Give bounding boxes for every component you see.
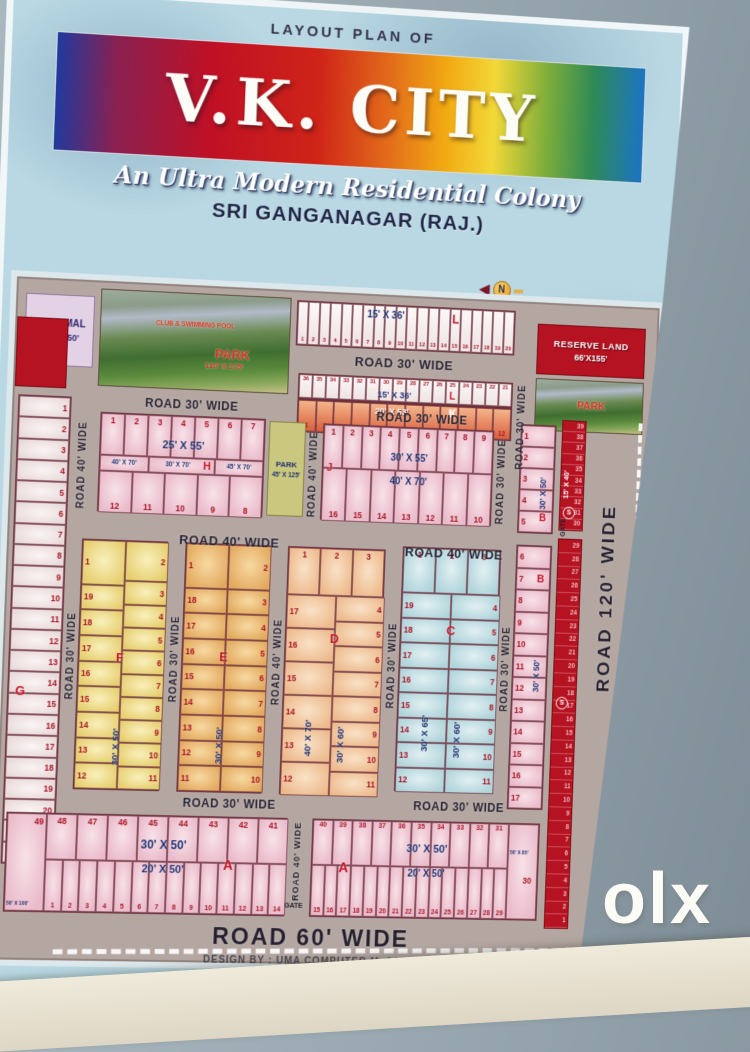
plot-cell: 3 xyxy=(546,888,569,902)
plot-cell: 5 xyxy=(450,619,500,645)
plot-cell: 36 xyxy=(299,374,313,398)
plot-cell: 10 xyxy=(549,794,572,808)
plot-cell: 1 xyxy=(287,547,321,595)
plot-cell: 3 xyxy=(124,581,168,606)
plot-cell: 4 xyxy=(16,459,68,482)
plot-cell: 8 xyxy=(222,716,265,742)
plot-cell: 7 xyxy=(516,567,551,590)
plot-cell: 26 xyxy=(557,580,580,594)
road-label-30-h: ROAD 30' WIDE xyxy=(109,394,275,415)
plot-cell: 12 xyxy=(280,762,330,797)
plot-cell: 13 xyxy=(9,650,61,673)
park-h-dim: 45' X 125' xyxy=(272,471,300,479)
block-e: 11817161514131211 2345678910 E 30' X 50' xyxy=(176,542,271,793)
plot-cell: 16 xyxy=(321,468,347,522)
layout-plan-sheet: LAYOUT PLAN OF V.K. CITY An Ultra Modern… xyxy=(0,0,689,1011)
plot-cell: 9 xyxy=(119,720,163,744)
north-arrow-head: ◀ xyxy=(479,282,490,297)
plot-cell: 7 xyxy=(548,834,571,848)
plot-cell: 18 xyxy=(184,587,228,614)
plot-cell: 11 xyxy=(513,655,548,678)
plot-cell: 1 xyxy=(19,395,71,418)
north-arrow-icon: ◀ N xyxy=(479,280,523,301)
plot-cell: 20 xyxy=(503,311,515,354)
plot-cell: 16 xyxy=(552,713,575,727)
plot-cell: 7 xyxy=(223,690,266,717)
block-e-right-col: 2345678910 xyxy=(220,545,272,793)
plot-cell: 29 xyxy=(558,539,581,553)
block-g: 12345678910111213141516171819202122 G xyxy=(1,394,72,864)
plot-cell: 13 xyxy=(251,864,270,916)
plot-cell: 12 xyxy=(512,677,547,700)
plot-cell: 5 xyxy=(518,511,553,534)
strip-l1: 1234567891011121314151617181920 15' X 36… xyxy=(296,300,516,355)
plot-cell: 23 xyxy=(472,382,486,406)
block-b-top-letter: B xyxy=(539,513,546,524)
plot-cell: 5 xyxy=(547,861,570,875)
plot-cell: 16 xyxy=(509,764,544,787)
plot-cell: 4 xyxy=(123,604,167,628)
plot-cell: 2 xyxy=(18,417,70,440)
plot-cell: 12 xyxy=(550,767,573,781)
plot-cell: 13 xyxy=(511,699,546,722)
park-dim: 110' X 175' xyxy=(205,361,244,372)
plot-cell: 1 xyxy=(185,543,229,589)
plot-cell: 17 xyxy=(286,594,336,629)
plot-cell: 6 xyxy=(15,501,67,524)
block-f: 11918171615141312 234567891011 F 30' X 5… xyxy=(73,538,169,791)
plot-49-corner: 49 50' X 100' xyxy=(4,813,47,912)
plot-cell: 4 xyxy=(546,874,569,888)
plot-cell: 14 xyxy=(551,740,574,754)
page-title: V.K. CITY xyxy=(164,59,540,158)
plot-30-number: 30 xyxy=(522,876,531,886)
plot-cell: 10 xyxy=(466,473,492,527)
plot-cell: 5 xyxy=(398,428,418,472)
road-label-30-bottom-left: ROAD 30' WIDE xyxy=(146,795,311,813)
plot-cell: 9 xyxy=(196,474,230,517)
plot-cell: 7 xyxy=(120,674,164,698)
plot-cell: 1 xyxy=(545,914,568,928)
road-label-30-top: ROAD 30' WIDE xyxy=(308,352,499,375)
plot-cell: 34 xyxy=(325,375,339,399)
plot-cell: 5 xyxy=(122,627,166,651)
plot-cell: 18 xyxy=(79,609,123,636)
plot-cell: 14 xyxy=(510,721,545,744)
block-e-letter: E xyxy=(219,649,228,664)
plot-cell: 3 xyxy=(361,426,381,470)
plot-cell: 10 xyxy=(118,743,162,767)
plot-cell: 5 xyxy=(225,640,268,667)
road-label-40-gh: ROAD 40' WIDE xyxy=(73,415,91,515)
plot-cell: 7 xyxy=(240,419,265,461)
road-label-40-aa: ROAD 40' WIDE xyxy=(288,824,304,899)
plot-cell: 41 xyxy=(257,818,289,864)
plot-cell: 10 xyxy=(513,633,548,656)
plot-cell: 11 xyxy=(329,771,379,797)
block-f-right-col: 234567891011 xyxy=(117,541,169,790)
gate-label-right: GATE xyxy=(560,518,567,537)
layout-map: INFORMAL 90' X 150' CLUB & SWIMMING POOL… xyxy=(0,276,660,969)
plot-cell: 19 xyxy=(4,777,56,799)
plot-cell: 12 xyxy=(395,767,445,793)
plot-cell: 12 xyxy=(10,629,62,652)
red-corner-block xyxy=(15,316,69,388)
reserve-land-label: RESERVE LAND xyxy=(554,339,629,353)
plot-cell: 21 xyxy=(498,383,512,407)
plot-cell: 2 xyxy=(545,901,568,915)
plot-cell: 11 xyxy=(550,780,573,794)
plot-30-corner: 50' X 85' 30 xyxy=(505,824,539,920)
block-d-letter: D xyxy=(330,631,340,646)
block-g-cells: 12345678910111213141516171819202122 xyxy=(2,395,71,863)
road-label-120: ROAD 120' WIDE xyxy=(592,453,623,744)
plot-cell: 1 xyxy=(81,539,126,585)
plot-cell: 6 xyxy=(224,665,267,692)
plot-cell: 2 xyxy=(228,545,272,590)
block-c-letter: C xyxy=(446,623,455,638)
plot-cell: 6 xyxy=(547,847,570,861)
park-label: PARK xyxy=(215,347,250,363)
plot-cell: 11 xyxy=(11,608,63,631)
plot-cell: 2 xyxy=(125,541,169,582)
plot-49-number: 49 xyxy=(34,816,44,826)
block-b-low-cells: 67891011121314151617 xyxy=(508,546,551,809)
plot-cell: 9 xyxy=(12,565,64,588)
plot-30-dim: 50' X 85' xyxy=(510,850,529,856)
road-120-center-dashes xyxy=(620,423,642,930)
plot-cell: 2 xyxy=(319,548,353,596)
plot-cell: 12 xyxy=(74,763,118,790)
strip-l1-letter: L xyxy=(452,313,459,327)
plot-cell: 19 xyxy=(401,592,451,619)
plot-cell: 13 xyxy=(551,754,574,768)
park-h-label: PARK xyxy=(276,459,298,469)
plot-cell: 12 xyxy=(98,470,132,513)
road-label-40-parkj: ROAD 40' WIDE xyxy=(304,425,321,524)
right-park-label: PARK xyxy=(577,400,606,413)
plot-cell: 10 xyxy=(220,766,263,792)
plot-cell: 27 xyxy=(557,566,580,580)
road-label-60: ROAD 60' WIDE xyxy=(161,922,459,954)
plot-cell: 9 xyxy=(473,431,493,475)
plot-cell: 35 xyxy=(312,375,326,399)
plot-cell: 25 xyxy=(556,593,579,607)
plot-cell: 4 xyxy=(380,427,400,471)
plot-cell: 24 xyxy=(459,381,473,405)
plot-cell: 8 xyxy=(119,697,163,721)
plot-cell: 8 xyxy=(455,430,475,474)
reserve-land-block: RESERVE LAND 66'X155' xyxy=(536,324,646,379)
plot-cell: 23 xyxy=(555,620,578,634)
plot-cell: 9 xyxy=(221,741,264,767)
plot-cell: 15 xyxy=(509,743,544,766)
block-c: 123 1918171615141312 4567891011 C 30' X … xyxy=(394,546,501,793)
club-pool-label: CLUB & SWIMMING POOL xyxy=(156,320,235,331)
plot-cell: 1 xyxy=(100,413,125,456)
gate-label-bottom: GATE xyxy=(284,903,302,910)
strip-s-top: 39383736353433323130 15' X 40' S xyxy=(558,420,586,531)
park-h-block: PARK 45' X 125' xyxy=(266,421,306,517)
north-tick xyxy=(513,289,523,293)
plot-cell: 4 xyxy=(335,596,385,623)
strip-l1-cells: 1234567891011121314151617181920 xyxy=(297,301,515,354)
block-b-low-letter: B xyxy=(537,574,545,586)
plot-cell: 18 xyxy=(400,617,450,644)
plot-cell: 8 xyxy=(548,821,571,835)
plot-cell: 7 xyxy=(436,429,456,473)
plot-cell: 28 xyxy=(558,553,581,567)
plot-cell: 21 xyxy=(555,646,578,660)
plot-cell: 3 xyxy=(17,438,69,461)
plot-cell: 11 xyxy=(131,472,165,515)
plot-cell: 2 xyxy=(342,425,363,469)
olx-watermark-sub: INDIA xyxy=(658,942,703,952)
plot-cell: 8 xyxy=(515,589,550,612)
plot-cell: 1 xyxy=(43,859,62,911)
block-j-top-row: 123456789 xyxy=(323,424,494,474)
plot-cell: 10 xyxy=(164,473,198,516)
plot-cell: 9 xyxy=(549,807,572,821)
plot-cell: 22 xyxy=(485,383,499,407)
plot-cell: 7 xyxy=(14,523,66,546)
block-h-bottom-row: 12111098 xyxy=(98,470,263,518)
plot-cell: 5 xyxy=(15,480,67,503)
plot-cell: 15 xyxy=(552,727,575,741)
block-a-right: 40393837363534333231 1516171819202122232… xyxy=(309,818,540,920)
plot-cell: 17 xyxy=(183,613,227,640)
plot-cell: 8 xyxy=(229,476,263,519)
block-j-letter: J xyxy=(326,462,332,474)
road-label-30-jright: ROAD 30' WIDE xyxy=(493,433,510,531)
plot-cell: 5 xyxy=(334,621,384,648)
plot-cell: 20 xyxy=(554,660,577,674)
block-d: 123 171615141312 4567891011 D 40' X 70' … xyxy=(279,546,386,796)
plot-cell: 9 xyxy=(514,611,549,634)
plot-cell: 4 xyxy=(519,489,554,512)
plot-cell: 17 xyxy=(6,735,58,758)
plot-cell: 6 xyxy=(417,428,437,472)
block-j: 123456789 30' X 55' J 16151413121110 40'… xyxy=(320,423,495,526)
block-a-left: 49 50' X 100' 4847464544434241 123456789… xyxy=(3,812,288,917)
block-b-low: 67891011121314151617 B 30' X 50' xyxy=(507,545,552,810)
plot-cell: 22 xyxy=(555,633,578,647)
north-letter: N xyxy=(492,280,511,299)
plot-cell: 8 xyxy=(13,544,65,567)
plot-cell: 18 xyxy=(5,756,57,778)
plot-cell: 48 xyxy=(45,814,77,860)
plot-cell: 19 xyxy=(554,673,577,687)
plot-cell: 4 xyxy=(226,614,269,641)
strip-l2-letter: L xyxy=(449,392,455,403)
reserve-land-dim: 66'X155' xyxy=(574,352,607,363)
olx-watermark: olx xyxy=(602,858,712,940)
plot-cell: 11 xyxy=(444,768,494,794)
block-a-right-letter: A xyxy=(338,859,348,875)
block-h: 1234567 25' X 55' 40' X 70' 30' X 70' H … xyxy=(97,412,266,518)
block-g-letter: G xyxy=(15,683,26,698)
plot-49-dim: 50' X 100' xyxy=(6,901,28,907)
block-f-letter: F xyxy=(116,650,124,665)
plot-cell: 40 xyxy=(312,820,333,866)
plot-cell: 16 xyxy=(7,714,59,737)
plot-cell: 3 xyxy=(227,589,270,616)
main-park-image: CLUB & SWIMMING POOL PARK 110' X 175' xyxy=(98,288,292,394)
plot-cell: 6 xyxy=(121,650,165,674)
block-h-top-row: 1234567 xyxy=(100,413,265,461)
block-a-left-letter: A xyxy=(223,857,233,873)
block-h-letter: H xyxy=(203,461,211,473)
plot-cell: 16 xyxy=(285,628,335,663)
plot-cell: 24 xyxy=(556,606,579,620)
plot-cell: 11 xyxy=(117,766,161,790)
road-label-30-bottom-right: ROAD 30' WIDE xyxy=(378,798,539,815)
plot-cell: 10 xyxy=(11,586,63,609)
plot-cell: 11 xyxy=(177,765,221,791)
plot-cell: 19 xyxy=(80,584,124,611)
plot-cell: 4 xyxy=(451,594,501,621)
